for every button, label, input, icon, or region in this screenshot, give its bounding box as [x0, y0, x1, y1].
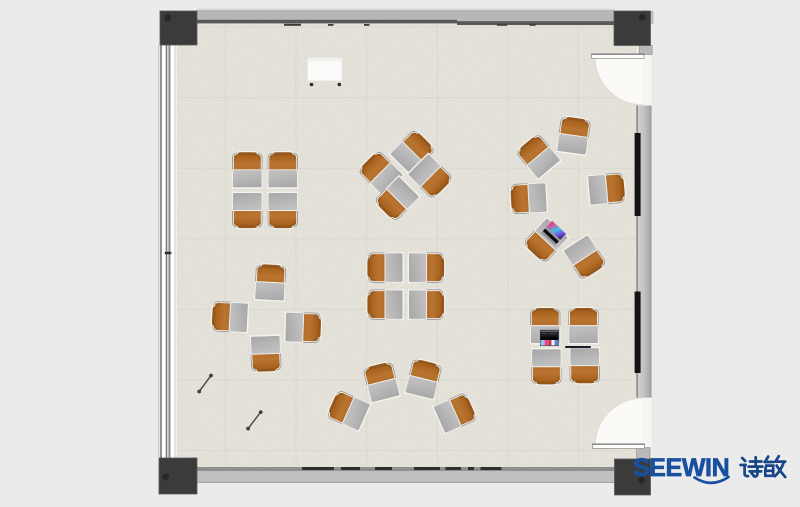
- svg-text:SEEWIN: SEEWIN: [633, 454, 729, 482]
